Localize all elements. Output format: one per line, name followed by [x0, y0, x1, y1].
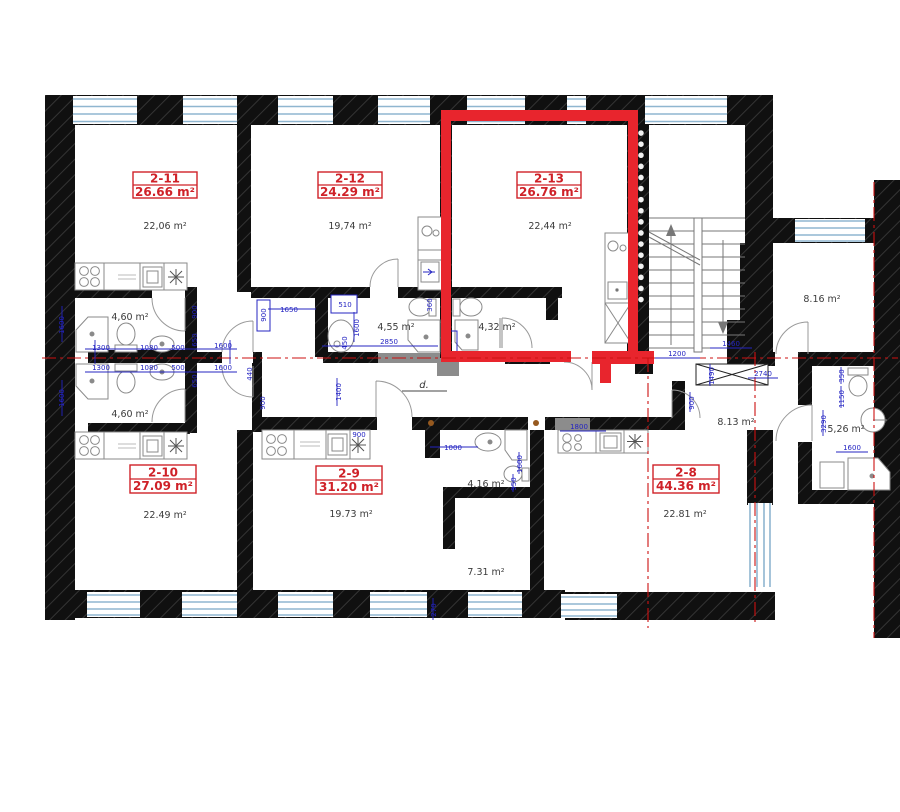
dim-text: 350: [838, 369, 846, 382]
dim-text: 1600: [58, 316, 66, 334]
dim-text: 1460: [722, 340, 740, 348]
bathroom-lower-left: [76, 364, 174, 399]
apartment-area: 26.76 m²: [519, 185, 579, 199]
dim-text: 1080: [140, 364, 158, 372]
apartment-label-2-10: 2-10 27.09 m²: [130, 465, 196, 493]
dim-text: 1150: [838, 390, 846, 408]
room-area: 8.13 m²: [717, 417, 754, 428]
apartment-area: 44.36 m²: [656, 479, 716, 493]
dim-text: 2740: [754, 370, 772, 378]
room-area: 19.73 m²: [329, 509, 372, 520]
door-bath-5-26: [776, 405, 812, 441]
room-area: 4,60 m²: [111, 312, 148, 323]
dim-text: 1400: [335, 383, 343, 401]
stair-down-arrow-head: [718, 322, 728, 334]
dim-text: 1650: [280, 306, 298, 314]
dim-text: 1300: [92, 364, 110, 372]
dim-text: 1300: [92, 344, 110, 352]
dim-text: 650: [191, 374, 199, 387]
dim-text: 450: [341, 336, 349, 349]
dim-text: 500: [171, 344, 184, 352]
apartment-area: 31.20 m²: [319, 480, 379, 494]
dim-text: 270: [430, 603, 438, 616]
apartment-unit: 2-10: [148, 466, 178, 480]
room-area: 4.16 m²: [467, 479, 504, 490]
dim-text: 950: [510, 477, 518, 490]
stair-break-line: [649, 232, 700, 265]
room-area: 4,55 m²: [377, 322, 414, 333]
dim-text: 1080: [140, 344, 158, 352]
apartment-unit: 2-9: [338, 467, 360, 481]
door-pivot: [533, 420, 539, 426]
apartment-area: 24.29 m²: [320, 185, 380, 199]
apartment-label-2-13: 2-13 26.76 m²: [517, 172, 581, 200]
dim-text: 1600: [516, 455, 524, 473]
stair-up-arrow-head: [666, 224, 676, 236]
dim-text: 900: [260, 308, 268, 321]
apartment-label-2-11: 2-11 26.66 m²: [133, 172, 197, 200]
floor-plan-page: 1600 1300 1080 500 900 650 1600 1650 900…: [0, 0, 900, 812]
kitchen-2-8: [558, 430, 648, 453]
dim-text: 2850: [380, 338, 398, 346]
dim-text: 900: [352, 431, 365, 439]
dim-text: 1000: [444, 444, 462, 452]
apartment-unit: 2-12: [335, 172, 365, 186]
dim-text: 1200: [668, 350, 686, 358]
room-area: 5,26 m²: [827, 424, 864, 435]
dim-text: 1600: [58, 389, 66, 407]
kitchen-2-13: [605, 233, 631, 343]
dim-text: 1800: [570, 423, 588, 431]
room-area: 22.49 m²: [143, 510, 186, 521]
room-area: 7.31 m²: [467, 567, 504, 578]
fridge-symbol: [168, 438, 184, 454]
fridge-symbol: [627, 434, 643, 449]
dim-text: 1600: [843, 444, 861, 452]
apartment-area: 27.09 m²: [133, 479, 193, 493]
door-bath-2-10: [152, 389, 185, 422]
dim-text: 900: [688, 396, 696, 409]
kitchen-2-10: [75, 432, 187, 459]
apartment-label-2-9: 2-9 31.20 m²: [316, 466, 382, 494]
corridor-label: d.: [419, 380, 429, 391]
apartment-label-2-8: 2-8 44.36 m²: [653, 465, 719, 493]
fridge-symbol: [168, 269, 184, 285]
kitchen-2-11: [75, 263, 187, 290]
door-room-8-16: [776, 322, 808, 354]
room-area: 4,32 m²: [478, 322, 515, 333]
door-entry-2-9: [376, 381, 412, 417]
room-area: 19,74 m²: [328, 221, 371, 232]
apartment-area: 26.66 m²: [135, 185, 195, 199]
dim-text: 440: [246, 367, 254, 380]
room-area: 22,06 m²: [143, 221, 186, 232]
stair-stringer: [694, 218, 702, 352]
dim-text: 360: [426, 298, 434, 311]
dim-text: 510: [338, 301, 351, 309]
window-opening-right-wall: [748, 503, 772, 587]
apartment-unit: 2-13: [534, 172, 564, 186]
dim-text: 1600: [214, 342, 232, 350]
window-opening-wing: [795, 219, 865, 242]
apartment-unit: 2-11: [150, 172, 180, 186]
room-area: 22,44 m²: [528, 221, 571, 232]
room-area: 4,60 m²: [111, 409, 148, 420]
corridor-mark: d.: [402, 380, 447, 391]
dim-text: 1600: [214, 364, 232, 372]
apartment-unit: 2-8: [675, 466, 697, 480]
door-entry-2-13: [564, 362, 592, 390]
dim-text: 900: [191, 305, 199, 318]
dim-text: 1490: [708, 367, 716, 385]
dim-text: 650: [191, 333, 199, 346]
door-pivot: [428, 420, 434, 426]
room-area: 8.16 m²: [803, 294, 840, 305]
fridge-symbol: [350, 437, 366, 453]
room-area: 22.81 m²: [663, 509, 706, 520]
kitchen-2-12: [418, 217, 442, 290]
dim-text: 900: [259, 396, 267, 409]
door-bath-2-12: [370, 259, 398, 287]
dim-text: 500: [171, 364, 184, 372]
dim-text: 1600: [353, 319, 361, 337]
apartment-label-2-12: 2-12 24.29 m²: [318, 172, 382, 200]
door-bath-2-11: [152, 298, 185, 331]
floor-plan-drawing: 1600 1300 1080 500 900 650 1600 1650 900…: [0, 0, 900, 812]
